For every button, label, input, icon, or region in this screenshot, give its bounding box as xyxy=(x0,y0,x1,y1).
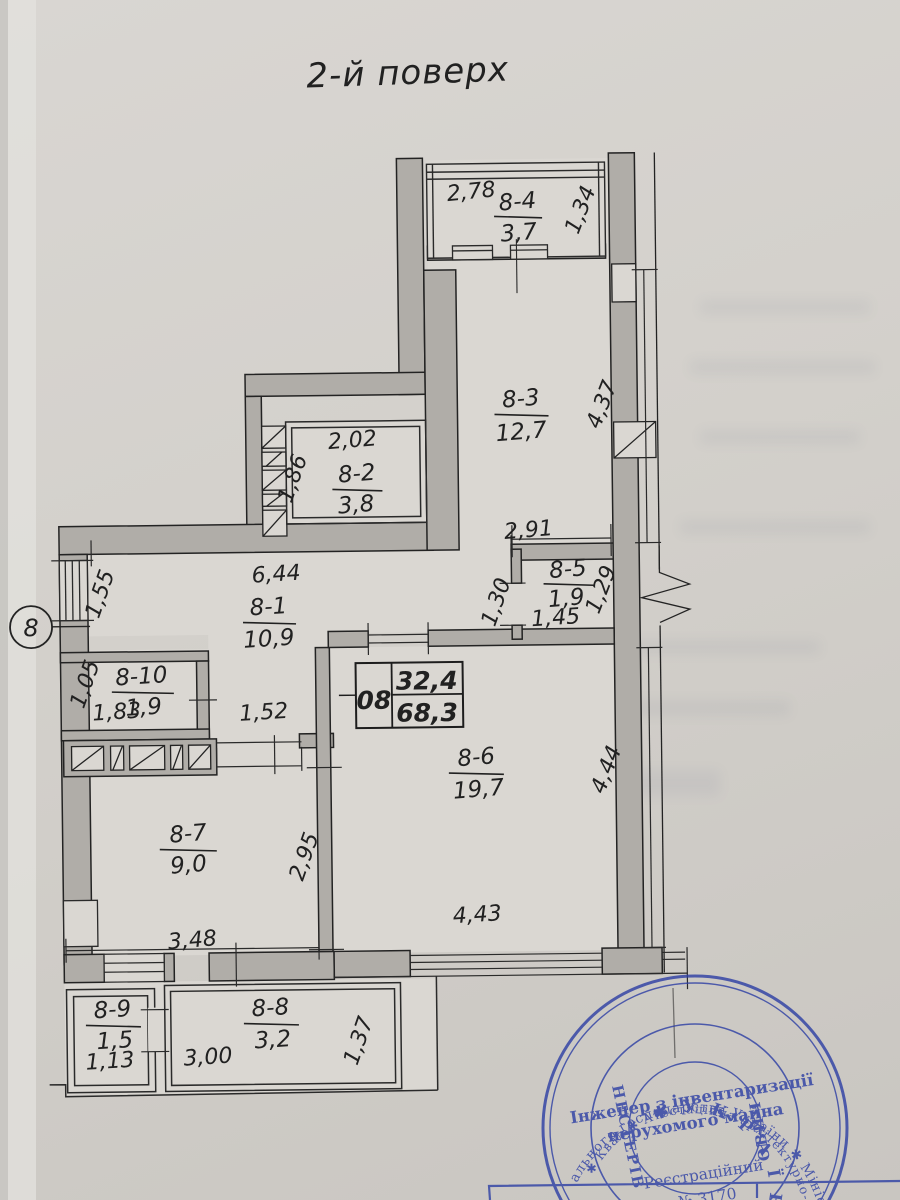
wall-bottom-e xyxy=(602,947,662,974)
fold-line xyxy=(673,988,675,1058)
room-id: 8-2 xyxy=(337,460,377,489)
room-area: 10,9 xyxy=(242,625,295,654)
page-edge-shadow xyxy=(0,0,8,1200)
photographed-floorplan-page: { "title": "2-й поверх", "plan": { "axis… xyxy=(0,0,900,1200)
total-area: 68,3 xyxy=(396,698,458,728)
dim-label: 2,78 xyxy=(446,177,497,207)
dim-label: 3,00 xyxy=(183,1043,233,1071)
room-id: 8-10 xyxy=(114,662,168,691)
page-title: 2-й поверх xyxy=(306,49,510,96)
stamp-reg-number: № 3170 xyxy=(677,1185,738,1200)
vent-row xyxy=(72,745,211,771)
apartment-info-table: 08 32,4 68,3 xyxy=(339,662,464,729)
room-id: 8-3 xyxy=(501,385,541,414)
room-id: 8-9 xyxy=(93,996,132,1024)
dim-label: 2,02 xyxy=(327,426,378,455)
room-id: 8-8 xyxy=(251,994,290,1022)
dim-label: 1,13 xyxy=(85,1048,135,1076)
west-niche xyxy=(63,900,98,946)
stamp-reg-label: Реєстраційний xyxy=(642,1156,764,1193)
wall-break-symbol xyxy=(641,545,690,623)
wall-room6-top-a xyxy=(328,631,368,647)
axis-marker-label: 8 xyxy=(23,614,39,642)
dim-label: 6,44 xyxy=(251,561,301,589)
wall-room6-left xyxy=(315,647,333,955)
wall-room3-left xyxy=(424,270,459,550)
apartment-number: 08 xyxy=(356,686,391,715)
dim-label: 1,45 xyxy=(530,604,580,632)
room-id: 8-4 xyxy=(498,188,538,217)
wall-bottom-d xyxy=(334,951,410,978)
dim-label: 1,83 xyxy=(92,699,142,727)
floorplan-drawing: 8 08 32,4 68,3 8-1 10,9 8-2 3,8 8-3 12,7… xyxy=(0,0,900,1200)
dim-label: 3,48 xyxy=(167,926,218,955)
room-id: 8-5 xyxy=(548,555,588,584)
inspector-stamp: ального господарства України ✱ Міністерс… xyxy=(489,976,900,1200)
wall-wc-left-b xyxy=(512,625,522,639)
wall-bottom-b xyxy=(164,953,174,981)
room-id: 8-1 xyxy=(249,593,288,621)
wall-upper-left xyxy=(396,158,425,394)
dim-label: 2,91 xyxy=(503,516,554,545)
dim-label: 4,43 xyxy=(452,901,502,929)
wall-step xyxy=(245,372,425,396)
wall-bottom-c xyxy=(209,951,334,981)
wall-bottom-a xyxy=(64,954,104,982)
room-area: 3,7 xyxy=(499,219,538,248)
room-area: 9,0 xyxy=(169,851,208,880)
dim-label: 1,52 xyxy=(239,699,289,727)
room-area: 19,7 xyxy=(452,775,506,805)
room-id: 8-6 xyxy=(456,743,496,772)
living-area: 32,4 xyxy=(396,666,458,696)
wall-hall-top xyxy=(59,522,433,555)
room-area: 12,7 xyxy=(495,417,549,447)
floorplan: 8 08 32,4 68,3 8-1 10,9 8-2 3,8 8-3 12,7… xyxy=(4,152,695,1097)
room-area: 3,8 xyxy=(337,491,376,520)
room-id: 8-7 xyxy=(168,820,208,849)
room-area: 3,2 xyxy=(254,1026,292,1054)
